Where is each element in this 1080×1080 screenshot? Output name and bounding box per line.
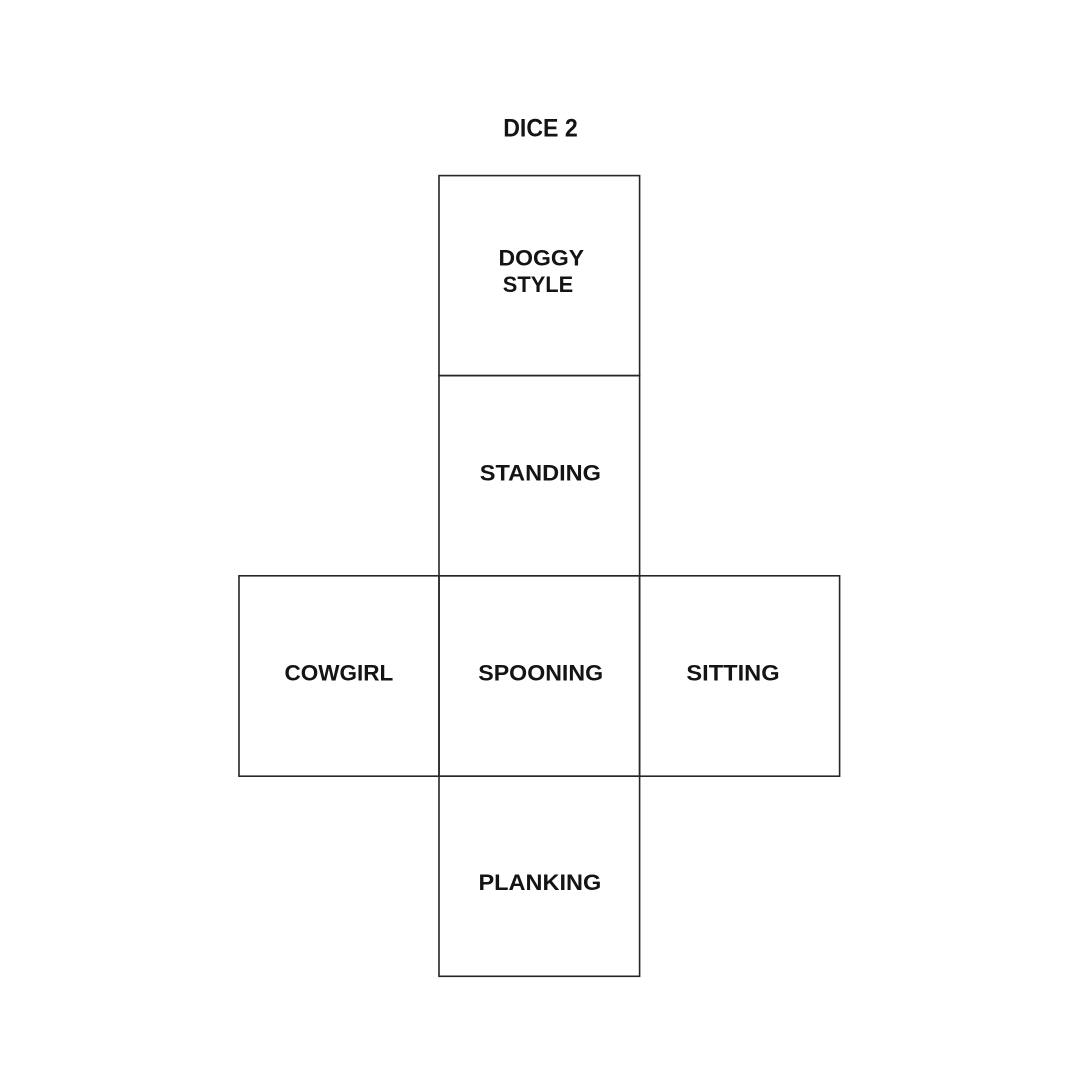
svg-text:SITTING: SITTING bbox=[686, 661, 779, 686]
svg-text:STYLE: STYLE bbox=[503, 272, 573, 297]
svg-text:DOGGY: DOGGY bbox=[499, 246, 585, 271]
svg-text:SPOONING: SPOONING bbox=[478, 661, 603, 686]
svg-text:PLANKING: PLANKING bbox=[479, 870, 602, 895]
svg-text:COWGIRL: COWGIRL bbox=[285, 661, 394, 686]
svg-text:STANDING: STANDING bbox=[480, 460, 601, 485]
svg-text:DICE 2: DICE 2 bbox=[503, 115, 578, 143]
